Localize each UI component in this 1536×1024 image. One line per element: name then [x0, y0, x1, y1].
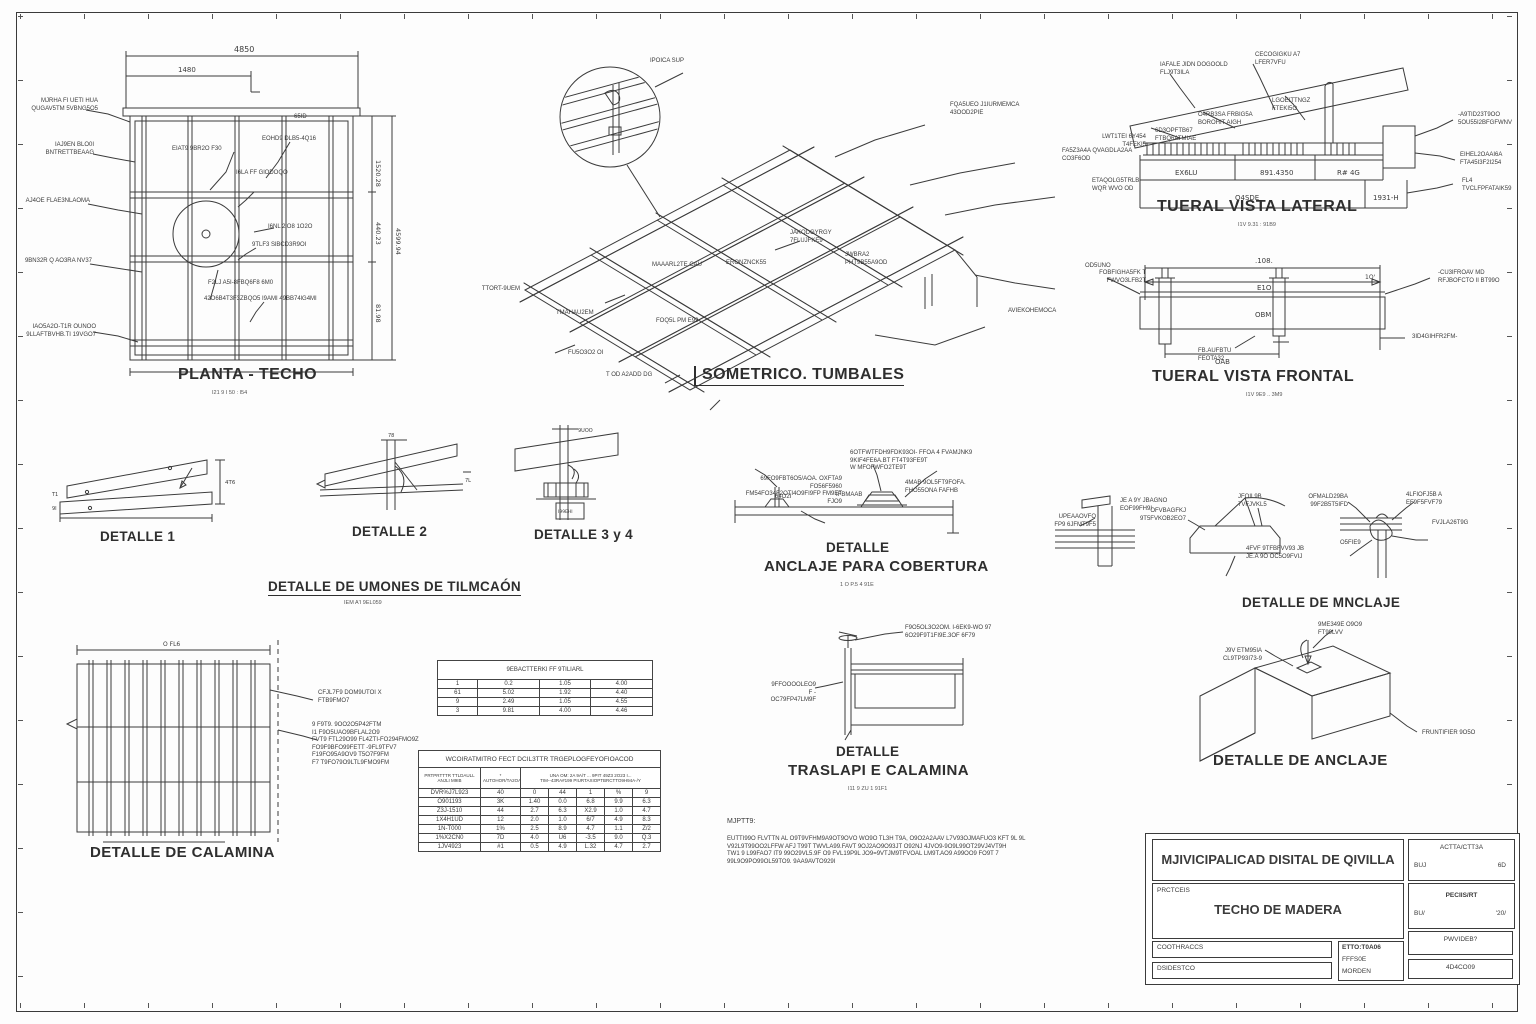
isometrico-title: SOMETRICO. TUMBALES [694, 366, 904, 386]
table-cell: 12 [481, 816, 521, 825]
table-cell: Z/2 [633, 825, 661, 834]
table-cell: 4.7 [633, 807, 661, 816]
table-title-row: WCOIRATMITRO FECT DCIL3TTR TRGEPLOGFEYOF… [419, 751, 661, 768]
detalle2-dim-right: 7L [465, 478, 471, 484]
table-cell: 2.0 [521, 816, 549, 825]
table-cell: 0.0 [549, 798, 577, 807]
uniones-scale: IEM A'I 9EL059 [344, 600, 382, 606]
titleblock-r2c: '20/ [1496, 910, 1506, 917]
table-row: 1JV4923#10.54.9L.324.72.7 [419, 843, 661, 852]
frontal-band-label: OBM [1255, 311, 1271, 319]
table-cell: X2.9 [577, 807, 605, 816]
planta-label-6: F2LJ A5I-8FBQ6F8 6M0 [208, 280, 273, 288]
frame-ticks-top [20, 14, 1512, 19]
titleblock-midbox: ETTO:T0A06 FFFS0E MORDEN [1338, 941, 1404, 981]
detalle34-dim-top: 9UOO [578, 428, 593, 434]
table-cell: 0 [521, 789, 549, 798]
table-cell: 5.02 [478, 689, 540, 698]
detalle34-dim-bottom: I99EHI [558, 509, 573, 515]
lateral-label-2: CECOGIGKU A7 LFER7VFU [1255, 52, 1300, 67]
mnclaje-title: DETALLE DE MNCLAJE [1242, 595, 1400, 610]
anclaje3d-label-left: J9V ETM95IA CL9TP93I73-9 [1210, 648, 1262, 663]
table-cell: Z3J-1510 [419, 807, 481, 816]
table-row: Z3J-1510442.76.3X2.91.04.7 [419, 807, 661, 816]
traslape-title2: TRASLAPI E CALAMINA [788, 762, 969, 779]
detalle1-dim-l1: T1 [51, 492, 58, 498]
table-cell: U6 [549, 834, 577, 843]
lateral-label-9: FL4 TVCLFPFATAIK59 [1462, 178, 1511, 193]
table2-h1: PRTPRTTTR TTLDAULL ANJLI M9IB [419, 768, 481, 789]
table-cell: 4.9 [549, 843, 577, 852]
titleblock-row2: DSIDESTCO [1152, 962, 1332, 979]
titleblock-row1: COOTHRACCS [1152, 941, 1332, 958]
anclaje-cob-title2: ANCLAJE PARA COBERTURA [764, 558, 989, 575]
frontal-label-3: FB.AUFBTU FEOTA32 [1198, 348, 1231, 363]
lateral-scale: I1V 9.31 : 91B9 [1238, 222, 1276, 228]
planta-techo-drawing: 4850 1480 1520.28 440.23 81.98 4599.94 [38, 42, 468, 402]
iso-label-5: JAKODGYRGY 7FI UJFKE9 [790, 230, 832, 245]
drawing-sheet: 4850 1480 1520.28 440.23 81.98 4599.94 [0, 0, 1536, 1024]
planta-label-8: I9AMI 49BB74lG4MI [262, 296, 317, 304]
table-cell: 44 [549, 789, 577, 798]
table-cell: 2.49 [478, 698, 540, 707]
traslape-scale: I11 9 ZU 1 91F1 [848, 786, 887, 792]
table-maderamiento: WCOIRATMITRO FECT DCIL3TTR TRGEPLOGFEYOF… [418, 750, 661, 852]
table-cell: 9 [633, 789, 661, 798]
iso-label-circle: IPOICA SUP [650, 58, 684, 66]
titleblock-mid3: MORDEN [1342, 968, 1371, 975]
vista-lateral-drawing: EX6LU 891.4350 R# 4G O4SDE 1931-H [1085, 48, 1485, 218]
detalle34-drawing: 9UOO I99EHI [500, 425, 635, 527]
titleblock-r4: 4D4CO09 [1408, 959, 1513, 979]
table-cell: 1.0 [549, 816, 577, 825]
titleblock-r1a: ACTTA/CTT3A [1409, 844, 1514, 851]
titleblock-project-label: PRCTCEIS [1157, 887, 1190, 894]
table-cell: Q.3 [633, 834, 661, 843]
anclaje3d-label-bottom: FRUNTIFIER 9O5O [1422, 730, 1475, 738]
table-header-row: PRTPRTTTR TTLDAULL ANJLI M9IB * AUTOHOR/… [419, 768, 661, 789]
detalle1-dim-right: 4T6 [225, 480, 236, 486]
planta-note-2: IAJ9EN BLO0I BNTRETTBEAAG [30, 142, 94, 157]
table-cell: 1JV4923 [419, 843, 481, 852]
planta-note-1: MJRHA FI UETI HUA QUGAV5TM 5VBNG5O5 [20, 98, 98, 113]
iso-label-9: TTORT-9UEM [470, 286, 520, 294]
table-row: 1X4H1UD122.01.06/74.98.3 [419, 816, 661, 825]
planta-dim-top2: 1480 [178, 66, 196, 74]
planta-title: PLANTA - TECHO [178, 366, 317, 384]
table-cell: 6.3 [549, 807, 577, 816]
frontal-scale: I1V 9E9 .. 3M9 [1246, 392, 1282, 398]
mnclaje-label-s3d: O5FIE9 [1340, 540, 1361, 548]
detalle1-drawing: 4T6 T1 9I [52, 448, 242, 528]
table-cell: 9.0 [605, 834, 633, 843]
lateral-label-6: LWT1TEI 6Y454 T4FEKI5 [1088, 134, 1146, 149]
anclaje-cob-label-top: 6OTFWTFDH9FDK93OI- FFOA 4 FVAMJNK9 9KIF4… [850, 450, 972, 473]
mnclaje-label-s3b: 4LFIOFJ5B A EF9F5FVF79 [1406, 492, 1442, 507]
table-cell: 9 [438, 698, 478, 707]
titleblock-r1: ACTTA/CTT3A BUJ 6D [1408, 839, 1515, 881]
titleblock-r3: PWVIDEB? [1408, 931, 1513, 955]
table-cell: 4.46 [591, 707, 653, 716]
table-cell: 0.2 [478, 680, 540, 689]
iso-label-1: FQA5UEO J1IURMEMCA 43OOD2PIE [950, 102, 1019, 117]
traslape-title1: DETALLE [836, 744, 899, 759]
anclaje-cob-label-s2: IFBMAAB [836, 492, 862, 500]
titleblock-mid2: FFFS0E [1342, 956, 1366, 963]
frontal-dim-mid: E1O [1257, 284, 1272, 292]
table-cell: 1.0 [605, 807, 633, 816]
notes-body: EUTTI99O FLVTTN AL O9T9VFHM9A9OT9OVO WO9… [727, 836, 1062, 866]
planta-label-5: 9TLF3 SlBCD3R9OI [252, 242, 306, 250]
table2-h3: UNA OM: 2A 9A/T ... 9PIT 49Z3 2O23 I... … [521, 768, 661, 789]
iso-label-11: FOQ5L PM E99 [656, 318, 698, 326]
planta-label-3: I6LA FF GlODOQO [236, 170, 288, 178]
planta-dim-top: 4850 [234, 45, 254, 54]
lateral-cell-2: 891.4350 [1260, 169, 1293, 177]
table-cell: 8.9 [549, 825, 577, 834]
detalle2-dim-top: 78 [388, 433, 394, 439]
titleblock-r1c: 6D [1498, 862, 1506, 869]
table-cell: 2.5 [521, 825, 549, 834]
anclaje-cob-label-s1: 64O2I [775, 494, 791, 502]
table-cell: 3 [438, 707, 478, 716]
titleblock-r1b: BUJ [1414, 862, 1426, 869]
iso-label-7: ERONZNCK55 [726, 260, 766, 268]
frontal-dim-right: 1O' [1365, 274, 1376, 281]
table-cell: 6/7 [577, 816, 605, 825]
detalle34-title: DETALLE 3 y 4 [534, 527, 633, 542]
titleblock-r2a: PECIIS/RT [1409, 892, 1514, 899]
titleblock-project-name: TECHO DE MADERA [1153, 902, 1403, 917]
detalle2-title: DETALLE 2 [352, 524, 427, 539]
iso-label-13: FU5O3O2 OI [568, 350, 603, 358]
table-cell: DVR%J7L923 [419, 789, 481, 798]
table-cell: % [605, 789, 633, 798]
table-row: 1%X2CN07D4.0U6-3.59.0Q.3 [419, 834, 661, 843]
planta-dim-right3: 81.98 [374, 304, 382, 323]
detalle1-title: DETALLE 1 [100, 529, 175, 544]
frontal-label-4: 3ID4GIHFR2FM- [1412, 334, 1457, 342]
table-cell: L.32 [577, 843, 605, 852]
table-cell: 1X4H1UD [419, 816, 481, 825]
detalle2-drawing: 78 7L [315, 432, 475, 527]
isometrico-drawing [455, 45, 1000, 395]
table-cell: 6.3 [633, 798, 661, 807]
table-row: 615.021.924.40 [438, 689, 653, 698]
notes-header: MJPTT9: [727, 818, 755, 827]
titleblock-r2: PECIIS/RT BU/ '20/ [1408, 883, 1515, 929]
table-row: 10.21.054.00 [438, 680, 653, 689]
lateral-cell-3: R# 4G [1337, 169, 1360, 177]
titleblock-organization: MJIVICIPALICAD DISITAL DE QIVILLA [1152, 839, 1404, 881]
table-cell: 9.9 [605, 798, 633, 807]
table-title-row: 9EBACTTERKI FF 9TILIARL [438, 661, 653, 680]
planta-label-4: I6NL 2lO8 1O2O [268, 224, 312, 232]
iso-label-14: T OD A2ADD DG [606, 372, 652, 380]
table-cell: 3K [481, 798, 521, 807]
table-cell: 44 [481, 807, 521, 816]
planta-dim-right1: 1520.28 [374, 160, 382, 187]
table-cell: 1.1 [605, 825, 633, 834]
anclaje-cob-label-left: 69FO9FBT6O5/AOA. OXFTA9 FO56F5960 FM54FO… [732, 476, 842, 506]
lateral-label-3: LGOEITTNGZ FTEKI5O [1272, 98, 1310, 113]
anclaje3d-drawing [1185, 618, 1415, 766]
frontal-label-2: -CU3lFROAV MD RFJBOFCTO II BT99O [1438, 270, 1500, 285]
mnclaje-label-s2b: JFOIL9B 7VFJVKL5 [1238, 494, 1267, 509]
table-cell: 4.00 [591, 680, 653, 689]
frontal-title: TUERAL VISTA FRONTAL [1152, 368, 1354, 386]
table-cell: 4.00 [540, 707, 591, 716]
table-cell: 6.8 [577, 798, 605, 807]
table-cell: 2.7 [521, 807, 549, 816]
planta-note-4: 9BN32R Q AO3RA NV37 [20, 258, 92, 266]
table-row: 92.491.054.55 [438, 698, 653, 707]
planta-label-2: EOHD9 DLB5-4Q16 [262, 136, 316, 144]
lateral-cell-1: EX6LU [1175, 169, 1197, 177]
anclaje3d-label-top: 9ME349E O9O9 FT99LVV [1318, 622, 1362, 637]
lateral-label-7: -A9TID23T9OO 5OU55I2BFGFWNV [1458, 112, 1512, 127]
planta-note-3: AJ4OE FLAE3NLAOMA [20, 198, 90, 206]
lateral-cell-5: 1931-H [1373, 194, 1399, 202]
titleblock-r2b: BU/ [1414, 910, 1425, 917]
mnclaje-label-s1a: UPEAAOVFO FP9 6JFMT9F5 [1044, 514, 1096, 529]
iso-label-12: AVIEKOHEMOCA [1008, 308, 1056, 316]
traslape-label-right: F9O5OL3O2OM. I-6EK9-WO 97 6O29F9T1FI9E.3… [905, 625, 991, 640]
frontal-label-1: FOBFIGHA5FK T FWVO3LFB2T [1088, 270, 1146, 285]
table2-h2: * AUTOHOR/TA2OAB [481, 768, 521, 789]
mnclaje-label-s2c: 4FVF 9TFBFVV93 JB JE.A 9O OC5O9FVIJ [1246, 546, 1304, 561]
lateral-label-4: O4RB3SA FRBIG5A BOROHIT AIGH [1198, 112, 1253, 127]
table-secciones: 9EBACTTERKI FF 9TILIARL 10.21.054.00615.… [437, 660, 653, 716]
lateral-label-8: EIHEL2OAAI6A FTA45I3F2I254 [1460, 152, 1502, 167]
table-cell: 4.0 [521, 834, 549, 843]
table-cell: 4.7 [605, 843, 633, 852]
frontal-dim-top: .108. [1255, 257, 1273, 265]
table-cell: 1 [577, 789, 605, 798]
table-row: DVR%J7L923400441%9 [419, 789, 661, 798]
planta-label-7: 42O6B4T3F3ZBQO5 [204, 296, 260, 304]
anclaje-cob-scale: 1 O P.5 4 91E [840, 582, 874, 588]
table-cell: 2.7 [633, 843, 661, 852]
table-cell: 1 [438, 680, 478, 689]
titleblock-project-box: PRCTCEIS TECHO DE MADERA [1152, 883, 1404, 939]
table-cell: #1 [481, 843, 521, 852]
table-cell: 1% [481, 825, 521, 834]
lateral-title: TUERAL VISTA LATERAL [1157, 198, 1357, 216]
planta-dim-right2: 440.23 [374, 222, 382, 245]
frame-ticks-left [18, 16, 23, 1008]
calamina-label-1: CFJL7F9 DOM9UTOI X FTB9FMO7 [318, 690, 382, 705]
lateral-label-1: IAFALE JIDN DOGOOLD FLJ9T3ILA [1160, 62, 1228, 77]
table-row: 1N-T0001%2.58.94.71.1Z/2 [419, 825, 661, 834]
table-cell: 1.05 [540, 698, 591, 707]
vista-frontal-drawing: .108. 1O' E1O OBM OAB [1085, 250, 1485, 370]
table-row: O9011933K1.400.06.89.96.3 [419, 798, 661, 807]
table-cell: 4.7 [577, 825, 605, 834]
planta-dim-total: 4599.94 [394, 228, 402, 255]
mnclaje-label-s2a: OFVBAGFKJ 9T5FVKOB2EO7 [1130, 508, 1186, 523]
iso-label-10: TMAHAU2EM [556, 310, 594, 318]
table-cell: 9.81 [478, 707, 540, 716]
table-cell: 0.5 [521, 843, 549, 852]
planta-note-5: IAO5A2O-T1R OUNOO 9LLAFTBVHB.TI 19VGO7 [20, 324, 96, 339]
calamina-label-2: 9 F9T9. 9OO2O5P42FTM I1 F9O5UAO9BFLAL2O9… [312, 722, 419, 767]
calamina-title: DETALLE DE CALAMINA [90, 844, 275, 861]
planta-corner-dim: 65ID [294, 114, 307, 122]
planta-label-1: EIAT9 9BR2O F30 [172, 146, 222, 154]
anclaje3d-title: DETALLE DE ANCLAJE [1213, 752, 1388, 769]
iso-label-8: MAAARL2TE CAU [652, 262, 702, 270]
table1-title: 9EBACTTERKI FF 9TILIARL [438, 661, 653, 680]
table-cell: 40 [481, 789, 521, 798]
detalle1-dim-l2: 9I [52, 506, 57, 512]
table-cell: 1.40 [521, 798, 549, 807]
table-cell: 1.05 [540, 680, 591, 689]
anclaje-cob-title1: DETALLE [826, 540, 889, 555]
table-cell: 1N-T000 [419, 825, 481, 834]
mnclaje-label-s3a: OFMALD29BA 99F2B5T5IFD [1290, 494, 1348, 509]
calamina-dim: O FL6 [163, 641, 180, 648]
table2-title: WCOIRATMITRO FECT DCIL3TTR TRGEPLOGFEYOF… [419, 751, 661, 768]
uniones-title: DETALLE DE UMONES DE TILMCAÓN [268, 579, 521, 596]
title-block: MJIVICIPALICAD DISITAL DE QIVILLA PRCTCE… [1145, 833, 1520, 985]
table-cell: 4.9 [605, 816, 633, 825]
planta-scale: I21 9 I 50 : I54 [212, 390, 247, 396]
table-cell: 8.3 [633, 816, 661, 825]
table-cell: 1%X2CN0 [419, 834, 481, 843]
traslape-label-left: 9FFOOOOLEO9 F - OC79FP47LM9F [770, 682, 816, 705]
table-cell: 7D [481, 834, 521, 843]
table-cell: O901193 [419, 798, 481, 807]
mnclaje-label-s3c: FVJLA26T9G [1432, 520, 1468, 528]
titleblock-mid1: ETTO:T0A06 [1342, 944, 1381, 951]
table-cell: -3.5 [577, 834, 605, 843]
anclaje-cob-label-right: 4MAB 9OL5FT9FOFA. FHO55ONA FAFHB [905, 480, 966, 495]
iso-label-6: JWBRA2 PHT9B55A9OD [845, 252, 887, 267]
table-cell: 1.92 [540, 689, 591, 698]
table-row: 39.814.004.46 [438, 707, 653, 716]
lateral-label-5: 6D3OPFTB67 FTBQ6ATMIAE [1155, 128, 1196, 143]
table-cell: 4.40 [591, 689, 653, 698]
table-cell: 4.55 [591, 698, 653, 707]
frame-ticks-bottom [20, 1003, 1512, 1008]
table-cell: 61 [438, 689, 478, 698]
